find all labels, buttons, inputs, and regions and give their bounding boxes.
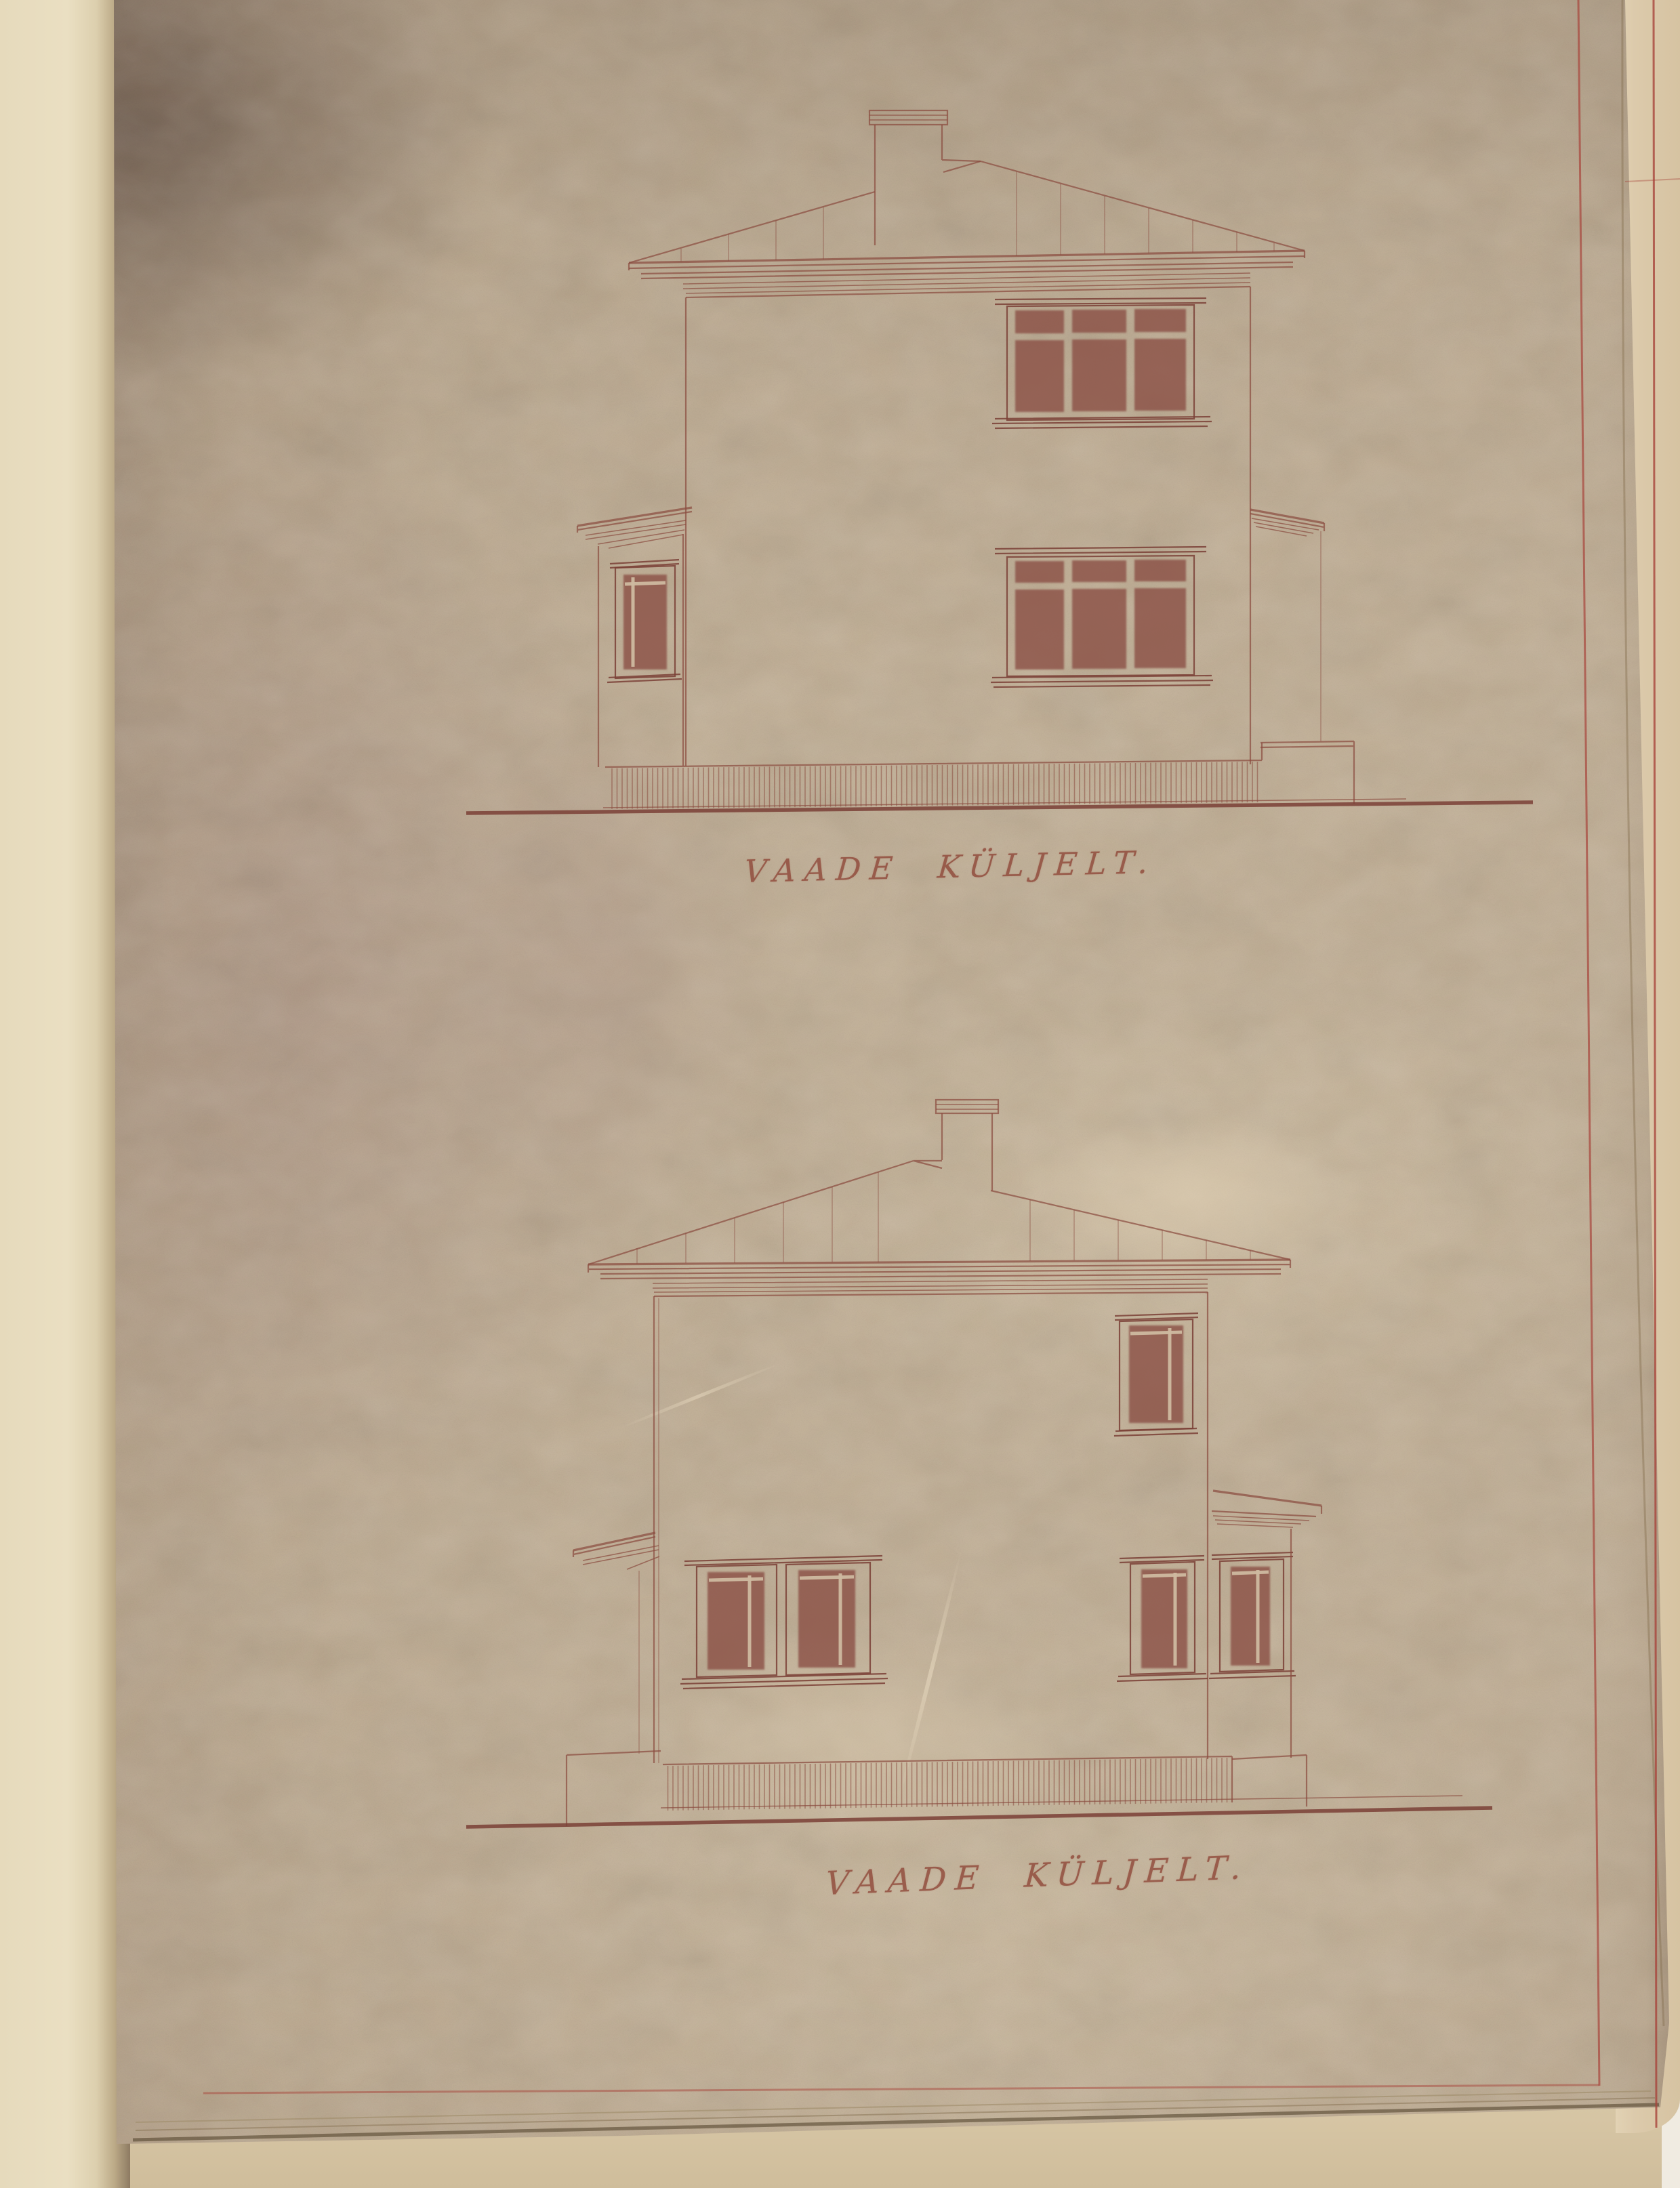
underlying-page-red-line (1654, 0, 1656, 2128)
scanned-drawing-page: VAADE KÜLJELT. VAADE KÜLJELT. (0, 0, 1680, 2188)
page-edge-lines-svg (0, 0, 1680, 2188)
